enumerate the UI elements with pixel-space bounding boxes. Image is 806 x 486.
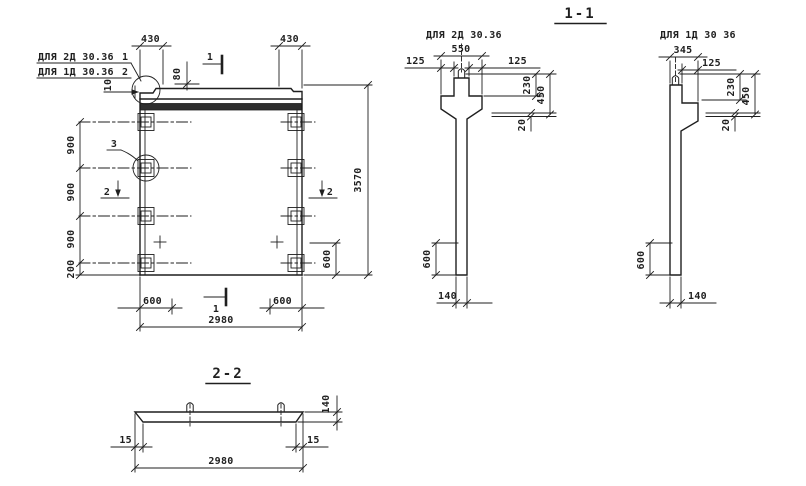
profile-2d-outline [441, 78, 482, 275]
dim-900-a: 900 [66, 136, 77, 155]
dim-80-label: 80 [172, 68, 183, 81]
cut-mark-2-left: 2 [101, 181, 129, 198]
panel-top-band [141, 104, 302, 111]
dim-900-b: 900 [66, 183, 77, 202]
dim-430-left: 430 [132, 34, 171, 84]
dim-430-left-label: 430 [141, 34, 160, 45]
dim-10: 10 [103, 79, 139, 98]
dim-80: 80 [172, 62, 199, 90]
dim-140-1d-label: 140 [688, 291, 707, 302]
cut-1-top-label: 1 [207, 52, 213, 63]
dim-600-right: 600 [310, 240, 340, 279]
callout-line2-ref: 2 [122, 67, 128, 78]
technical-drawing: ДЛЯ 2Д 30.36 1 ДЛЯ 1Д 30.36 2 3 430 [0, 0, 806, 486]
dim-3570: 3570 [304, 82, 372, 279]
dim-900-c: 900 [66, 230, 77, 249]
detail-3-label: 3 [111, 139, 117, 150]
dim-230-2d-label: 230 [522, 76, 533, 95]
dim-450-1d: 450 [741, 71, 759, 119]
cut-2-right-label: 2 [327, 187, 333, 198]
cut-1-bottom-label: 1 [213, 304, 219, 315]
dim-140-2d: 140 [437, 277, 492, 308]
dim-140-plan: 140 [298, 395, 342, 430]
cut-2-left-label: 2 [104, 187, 110, 198]
dim-15-right-label: 15 [307, 435, 320, 446]
profile-1d-view: ДЛЯ 1Д 30 36 345 125 230 450 [636, 30, 760, 308]
section-2-2-title: 2-2 [206, 366, 250, 384]
dim-15-left-label: 15 [119, 435, 132, 446]
dim-125-left: 125 [405, 56, 458, 72]
dim-600-bottom-right: 600 [260, 277, 324, 331]
dim-20-2d: 20 [492, 110, 556, 132]
dim-600-bl-label: 600 [143, 296, 162, 307]
dim-3570-label: 3570 [353, 167, 364, 192]
dim-2980-label: 2980 [208, 315, 233, 326]
dim-125-1d-label: 125 [702, 58, 721, 69]
dim-550-label: 550 [452, 44, 471, 55]
detail-3-leader [121, 150, 138, 161]
dim-20-2d-label: 20 [517, 119, 528, 132]
callout-line1: ДЛЯ 2Д 30.36 [38, 52, 114, 63]
cut-mark-2-right: 2 [309, 181, 337, 198]
dim-140-1d: 140 [660, 277, 716, 308]
section-2-2-text: 2-2 [212, 366, 243, 382]
detail-3-callout: 3 [107, 139, 138, 161]
callout-line1-ref: 1 [122, 52, 128, 63]
dim-600-1d-label: 600 [636, 251, 647, 270]
dim-600-right-label: 600 [322, 250, 333, 269]
dim-600-1d: 600 [636, 240, 672, 279]
dim-230-1d-label: 230 [726, 78, 737, 97]
dim-125-right: 125 [465, 56, 540, 72]
dim-600-br-label: 600 [273, 296, 292, 307]
dim-450-1d-label: 450 [741, 87, 752, 106]
dim-430-right-label: 430 [280, 34, 299, 45]
top-rail [140, 89, 302, 100]
dim-20-1d: 20 [706, 110, 760, 132]
dim-450-2d-label: 450 [536, 86, 547, 105]
profile-2d-label: ДЛЯ 2Д 30.36 [426, 30, 502, 41]
drawing-sheet: ДЛЯ 2Д 30.36 1 ДЛЯ 1Д 30.36 2 3 430 [0, 0, 806, 486]
callout-leader [131, 63, 141, 81]
cut-mark-1-top: 1 [203, 52, 222, 73]
slab-outline [135, 412, 303, 422]
dim-2980-plan-label: 2980 [208, 456, 233, 467]
elevation-view: ДЛЯ 2Д 30.36 1 ДЛЯ 1Д 30.36 2 3 430 [37, 34, 372, 331]
dim-2980-plan: 2980 [132, 456, 307, 472]
panel-edges [140, 99, 302, 275]
dim-20-1d-label: 20 [721, 119, 732, 132]
dim-10-label: 10 [103, 79, 114, 92]
dim-2980-elevation: 2980 [137, 315, 306, 331]
dim-430-right: 430 [271, 34, 310, 88]
dim-125-left-label: 125 [406, 56, 425, 67]
section-1-1-text: 1-1 [564, 6, 595, 22]
dim-140-plan-label: 140 [321, 395, 332, 414]
cut-mark-1-bottom: 1 [204, 289, 226, 315]
dim-450-2d: 450 [536, 71, 554, 119]
embed-brackets [138, 114, 304, 272]
dim-345-label: 345 [674, 45, 693, 56]
dim-600-2d: 600 [422, 240, 458, 279]
callout-line2: ДЛЯ 1Д 30.36 [38, 67, 114, 78]
profile-1d-outline [670, 85, 698, 275]
type-callout: ДЛЯ 2Д 30.36 1 ДЛЯ 1Д 30.36 2 [37, 52, 141, 81]
dim-345: 345 [659, 45, 707, 101]
dim-140-2d-label: 140 [438, 291, 457, 302]
dim-chain-left: 900 900 900 200 [66, 119, 140, 279]
section-2-2-view: 2-2 15 15 2980 [111, 366, 342, 472]
dim-600-2d-label: 600 [422, 250, 433, 269]
dim-200: 200 [66, 260, 77, 279]
plus-marks [154, 236, 283, 248]
dim-600-bottom-left: 600 [118, 277, 182, 331]
dim-125-right-label: 125 [508, 56, 527, 67]
section-1-1-title: 1-1 [555, 6, 606, 24]
profile-2d-view: ДЛЯ 2Д 30.36 550 125 125 23 [405, 30, 556, 308]
profile-1d-label: ДЛЯ 1Д 30 36 [660, 30, 736, 41]
